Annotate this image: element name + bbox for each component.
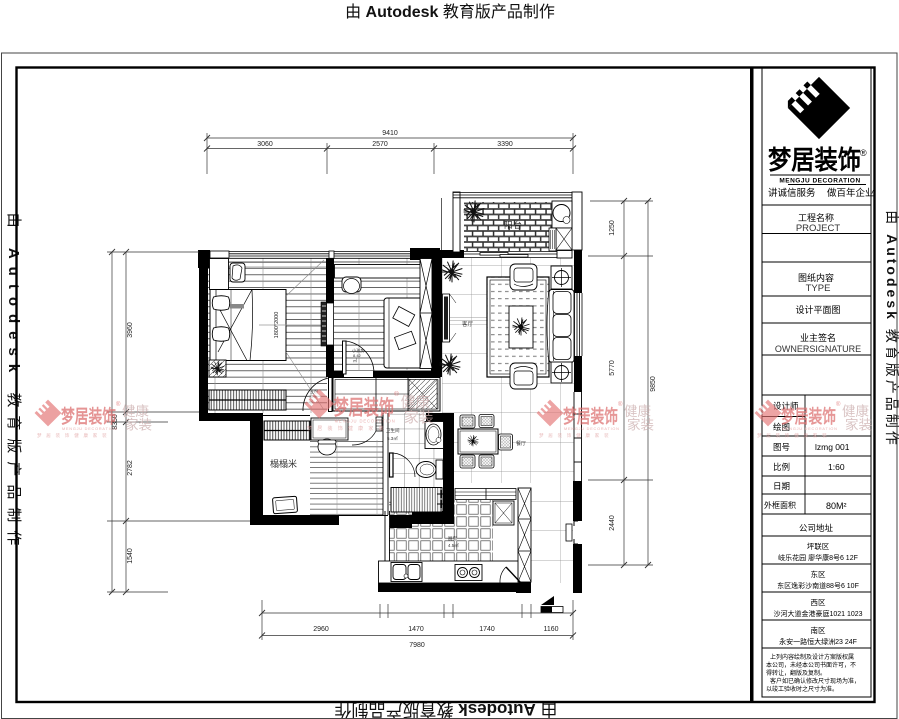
svg-text:比例: 比例 xyxy=(773,462,790,472)
svg-text:日期: 日期 xyxy=(773,481,790,491)
svg-text:3390: 3390 xyxy=(497,141,513,148)
svg-text:公司地址: 公司地址 xyxy=(799,523,834,533)
svg-text:东区: 东区 xyxy=(811,569,826,579)
svg-text:以竣工验收时之尺寸为准。: 以竣工验收时之尺寸为准。 xyxy=(766,685,838,693)
svg-text:2782: 2782 xyxy=(127,460,134,476)
svg-text:lzmg 001: lzmg 001 xyxy=(815,442,850,452)
svg-text:3960: 3960 xyxy=(127,322,134,338)
svg-text:1540: 1540 xyxy=(127,548,134,564)
svg-text:PROJECT: PROJECT xyxy=(796,223,841,234)
svg-text:7980: 7980 xyxy=(409,642,425,649)
svg-text:本公司，未经本公司书面许可，不: 本公司，未经本公司书面许可，不 xyxy=(766,661,856,669)
svg-text:岐乐花园 廖华康8号6 12F: 岐乐花园 廖华康8号6 12F xyxy=(778,553,858,562)
svg-text:厨房: 厨房 xyxy=(448,535,457,542)
svg-text:永安一路恒大绿洲23 24F: 永安一路恒大绿洲23 24F xyxy=(779,637,857,646)
svg-text:2570: 2570 xyxy=(372,141,388,148)
svg-text:阳台: 阳台 xyxy=(504,220,523,230)
svg-text:5.3㎡: 5.3㎡ xyxy=(387,435,398,441)
svg-text:餐厅: 餐厅 xyxy=(516,440,526,447)
svg-text:80M²: 80M² xyxy=(826,501,847,511)
svg-text:MENGJU DECORATION: MENGJU DECORATION xyxy=(779,178,860,185)
svg-text:榻榻米: 榻榻米 xyxy=(270,458,297,469)
svg-text:由 Autodesk 教育版产品制作: 由 Autodesk 教育版产品制作 xyxy=(5,213,22,554)
svg-text:2440: 2440 xyxy=(609,515,616,531)
svg-text:1740: 1740 xyxy=(479,626,495,633)
svg-text:设计平面图: 设计平面图 xyxy=(795,304,840,315)
svg-text:西区: 西区 xyxy=(811,598,826,607)
svg-text:TYPE: TYPE xyxy=(806,283,831,294)
svg-text:1470: 1470 xyxy=(408,626,424,633)
svg-text:南区: 南区 xyxy=(811,625,826,635)
svg-text:上列内容绘制及设计方案版权属: 上列内容绘制及设计方案版权属 xyxy=(770,653,854,661)
svg-text:做百年企业: 做百年企业 xyxy=(827,187,875,199)
svg-text:1800*2000: 1800*2000 xyxy=(274,312,280,339)
svg-text:客户如已确认修改尺寸现场为准，: 客户如已确认修改尺寸现场为准， xyxy=(770,677,860,685)
svg-text:5770: 5770 xyxy=(609,360,616,376)
svg-text:图纸内容: 图纸内容 xyxy=(798,272,834,283)
svg-text:®: ® xyxy=(860,148,867,158)
svg-text:9410: 9410 xyxy=(382,130,398,137)
svg-text:外框面积: 外框面积 xyxy=(764,500,796,510)
svg-text:2960: 2960 xyxy=(313,626,329,633)
svg-text:讲诚信服务: 讲诚信服务 xyxy=(768,187,816,199)
svg-text:3060: 3060 xyxy=(257,141,273,148)
svg-text:4.5㎡: 4.5㎡ xyxy=(448,542,459,548)
svg-text:坪联区: 坪联区 xyxy=(807,542,830,551)
svg-text:OWNERSIGNATURE: OWNERSIGNATURE xyxy=(775,344,861,354)
svg-text:1:60: 1:60 xyxy=(828,462,845,472)
svg-text:由 Autodesk 教育版产品制作: 由 Autodesk 教育版产品制作 xyxy=(345,3,555,21)
svg-text:客厅: 客厅 xyxy=(462,320,474,328)
svg-text:㎡: ㎡ xyxy=(353,357,357,363)
svg-text:图号: 图号 xyxy=(773,442,790,452)
svg-text:东区逸彩沙南道88号6 10F: 东区逸彩沙南道88号6 10F xyxy=(777,581,859,590)
svg-text:1160: 1160 xyxy=(543,626,558,633)
svg-text:沙河大道金港豪庭1021 1023: 沙河大道金港豪庭1021 1023 xyxy=(773,609,862,618)
svg-text:业主签名: 业主签名 xyxy=(800,332,836,343)
svg-text:工程名称: 工程名称 xyxy=(798,212,834,223)
svg-text:得转让，翻版及复制。: 得转让，翻版及复制。 xyxy=(766,669,826,677)
svg-text:9850: 9850 xyxy=(650,376,657,392)
svg-text:1250: 1250 xyxy=(609,220,616,236)
svg-text:梦居装饰: 梦居装饰 xyxy=(768,146,861,175)
